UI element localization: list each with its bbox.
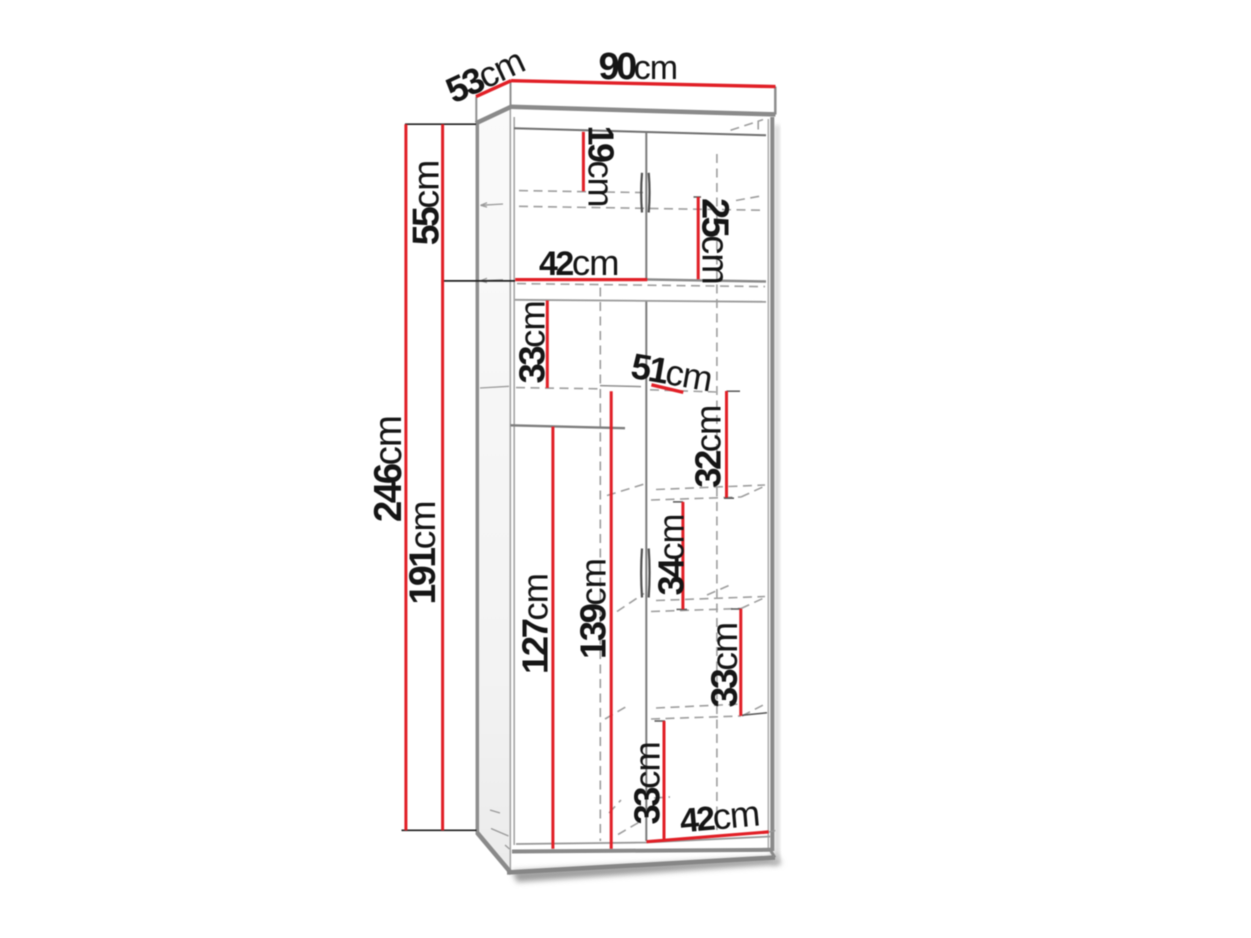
svg-text:191cm: 191cm (401, 501, 443, 604)
svg-text:139cm: 139cm (573, 559, 614, 659)
svg-text:42cm: 42cm (539, 242, 618, 283)
svg-text:53cm: 53cm (440, 40, 531, 111)
svg-text:127cm: 127cm (515, 574, 556, 674)
svg-text:90cm: 90cm (599, 46, 678, 88)
svg-text:33cm: 33cm (627, 742, 668, 824)
svg-text:19cm: 19cm (580, 126, 621, 207)
svg-text:33cm: 33cm (512, 301, 553, 383)
svg-text:32cm: 32cm (688, 406, 729, 488)
svg-text:55cm: 55cm (405, 161, 447, 246)
svg-text:33cm: 33cm (703, 623, 745, 708)
svg-text:34cm: 34cm (650, 514, 691, 595)
svg-text:25cm: 25cm (693, 198, 735, 284)
svg-text:51cm: 51cm (628, 345, 715, 399)
svg-text:42cm: 42cm (678, 793, 761, 841)
